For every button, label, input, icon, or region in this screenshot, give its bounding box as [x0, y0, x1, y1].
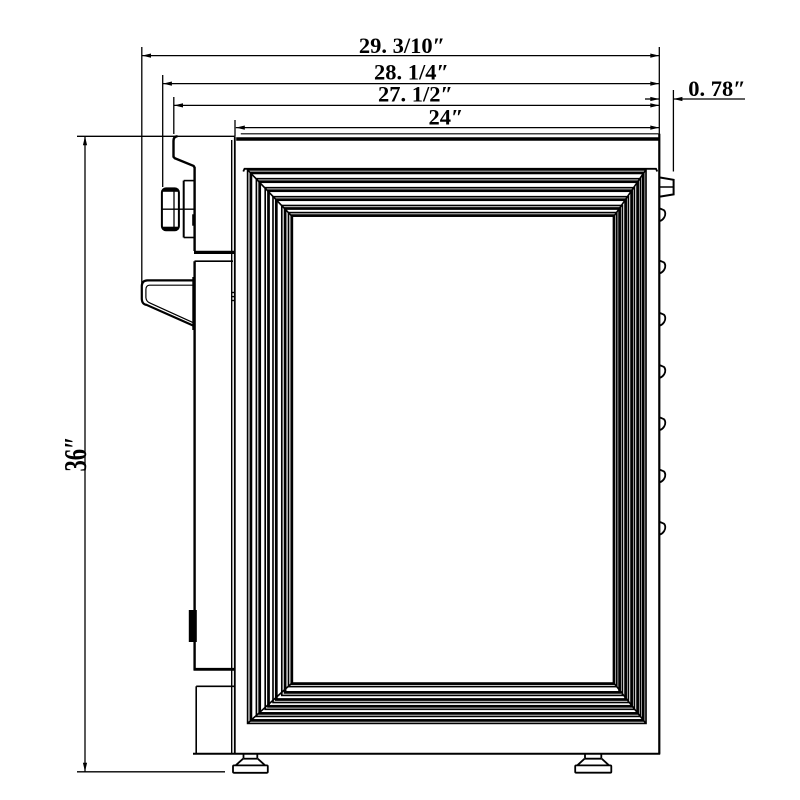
svg-text:29. 3/10″: 29. 3/10″ — [359, 33, 445, 58]
svg-text:27. 1/2″: 27. 1/2″ — [378, 82, 453, 107]
svg-text:24″: 24″ — [429, 105, 464, 130]
svg-text:0. 78″: 0. 78″ — [688, 76, 745, 101]
svg-text:36″: 36″ — [57, 437, 93, 472]
